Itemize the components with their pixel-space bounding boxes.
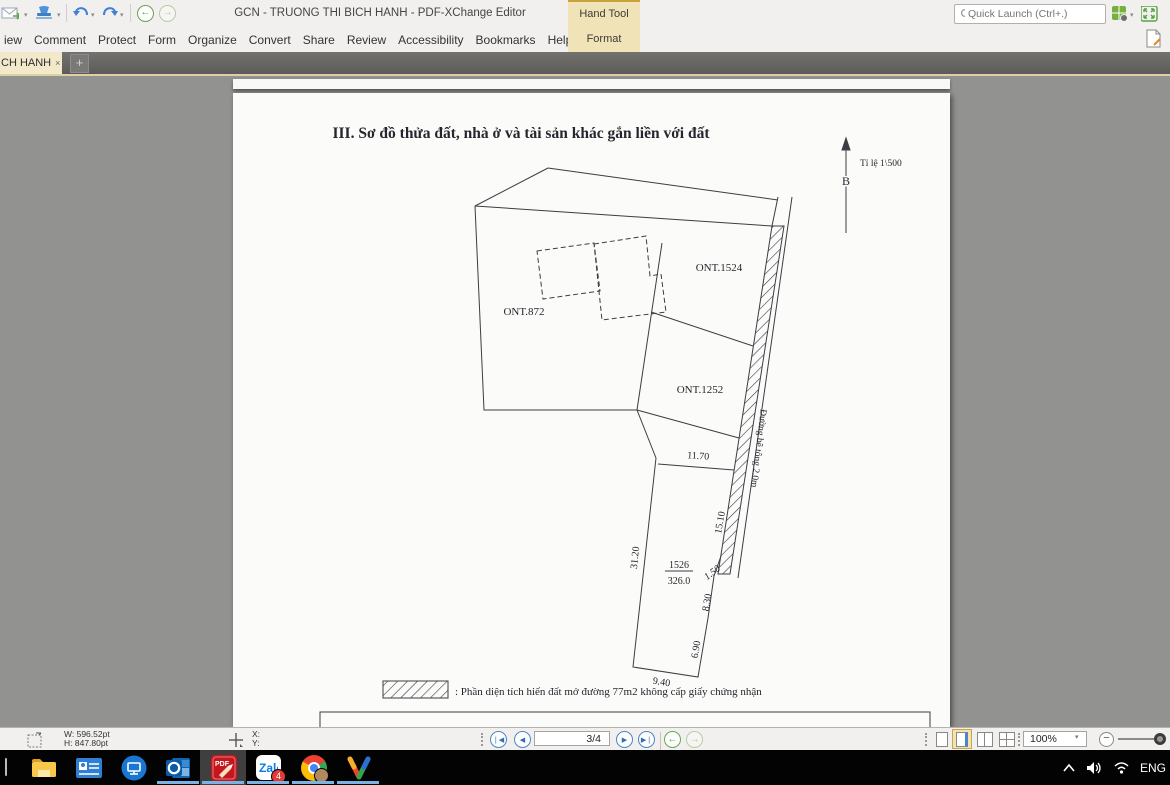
continuous-layout-active[interactable] (952, 729, 972, 749)
taskbar-zalo[interactable]: Zalo 4 (246, 750, 291, 785)
menubar: iew Comment Protect Form Organize Conver… (2, 28, 574, 52)
v-colorful-icon (346, 756, 372, 780)
parcel-left-edge (475, 206, 637, 410)
menu-convert[interactable]: Convert (247, 33, 293, 47)
menu-comment[interactable]: Comment (32, 33, 88, 47)
last-page-button[interactable]: ▶❘ (638, 731, 655, 748)
contact-card-icon (76, 758, 102, 778)
legend-text: : Phần diện tích hiến đất mở đường 77m2 … (455, 686, 762, 698)
dim-right-upper: 8.30 (701, 593, 715, 612)
road-strip-hatched (718, 226, 784, 574)
dim-line-1170 (658, 464, 734, 470)
email-share-icon[interactable] (1, 5, 19, 21)
email-share-caret[interactable]: ▾ (24, 11, 28, 19)
crosshair-icon (228, 732, 244, 748)
plugins-icon[interactable] (1112, 6, 1130, 22)
window-title: GCN - TRUONG THI BICH HANH - PDF-XChange… (230, 7, 530, 19)
zoom-out-button[interactable]: − (1099, 732, 1114, 747)
plugins-caret[interactable]: ▾ (1130, 11, 1134, 19)
menu-review[interactable]: Review (345, 33, 388, 47)
monitor-circle-icon (121, 755, 147, 781)
taskbar-outlook[interactable] (156, 750, 201, 785)
active-tool-panel: Hand Tool Format (568, 0, 640, 52)
parcel-area: 326.0 (668, 576, 691, 587)
quick-launch-input[interactable] (965, 7, 1105, 21)
parcel-band-edge (475, 206, 772, 226)
menu-view[interactable]: iew (2, 33, 24, 47)
redo-caret[interactable]: ▾ (120, 11, 124, 19)
scale-label: Tỉ lệ 1\500 (860, 159, 902, 169)
menu-organize[interactable]: Organize (186, 33, 239, 47)
status-bar: W: 596.52pt H: 847.80pt X: Y: ❘◀ ◀ 3/4 ▶… (0, 727, 1170, 750)
undo-caret[interactable]: ▾ (91, 11, 95, 19)
document-properties-icon[interactable] (1146, 29, 1162, 49)
road-right-edge (738, 197, 792, 578)
system-tray: ENG (1062, 750, 1166, 785)
parcel-number: 1526 (669, 560, 689, 571)
next-view-icon[interactable]: → (159, 5, 176, 22)
land-plot-diagram: III. Sơ đồ thửa đất, nhà ở và tài sản kh… (233, 93, 950, 727)
first-page-button[interactable]: ❘◀ (490, 731, 507, 748)
building-1-dashed (537, 243, 600, 299)
stamp-caret[interactable]: ▾ (57, 11, 61, 19)
menu-bookmarks[interactable]: Bookmarks (474, 33, 538, 47)
fullscreen-icon[interactable] (1141, 6, 1159, 22)
north-arrow-head (842, 138, 850, 150)
road-left-upper (772, 197, 778, 226)
running-indicator (202, 781, 244, 784)
redo-icon[interactable] (101, 5, 119, 21)
hand-tool-label[interactable]: Hand Tool (568, 8, 640, 20)
page-number-box[interactable]: 3/4 (534, 731, 610, 746)
taskbar-v-app[interactable] (336, 750, 381, 785)
parcel-label-ont1524: ONT.1524 (696, 262, 743, 274)
divider-1524-1252 (651, 312, 753, 346)
tab-close-icon[interactable]: × (55, 58, 60, 68)
toolbar-grip[interactable] (925, 733, 931, 746)
menu-protect[interactable]: Protect (96, 33, 138, 47)
parcel-label-ont1252: ONT.1252 (677, 384, 724, 396)
divider-1252-bottom (637, 410, 739, 438)
taskbar-edge-grip[interactable] (5, 758, 7, 776)
menu-accessibility[interactable]: Accessibility (396, 33, 465, 47)
document-tab[interactable]: CH HANH × (0, 52, 62, 74)
tab-bar: CH HANH × + (0, 52, 1170, 76)
pdf-xchange-icon: PDF (211, 755, 237, 781)
parcel-left-top-edge (475, 168, 548, 206)
running-indicator (247, 781, 289, 784)
connector-edge (637, 410, 656, 458)
outlook-icon (166, 756, 191, 780)
next-view-button[interactable]: → (686, 731, 703, 748)
menu-form[interactable]: Form (146, 33, 178, 47)
building-2-dashed (594, 236, 666, 320)
file-explorer-icon (31, 757, 57, 779)
legend-swatch (383, 681, 448, 698)
next-page-button[interactable]: ▶ (616, 731, 633, 748)
language-indicator[interactable]: ENG (1140, 761, 1166, 775)
wifi-icon[interactable] (1113, 761, 1130, 774)
volume-icon[interactable] (1086, 761, 1103, 775)
pdf-xchange-window: ▾ ▾ ▾ ▾ ← → GCN - TRUONG THI BICH HANH -… (0, 0, 1170, 785)
cursor-y-readout: Y: (252, 739, 260, 749)
dim-top: 11.70 (687, 450, 710, 463)
single-page-layout-icon[interactable] (936, 732, 948, 747)
tab-label: CH HANH (1, 57, 51, 69)
taskbar-remote-app[interactable] (111, 750, 156, 785)
dim-left: 31.20 (629, 546, 642, 570)
page-size-icon (27, 732, 44, 748)
section-title: III. Sơ đồ thửa đất, nhà ở và tài sản kh… (332, 125, 710, 142)
taskbar-chrome[interactable] (291, 750, 336, 785)
running-indicator (337, 781, 379, 784)
toolbar-separator (66, 4, 67, 22)
running-indicator (157, 781, 199, 784)
continuous-layout-icon (956, 732, 968, 747)
quick-launch[interactable] (954, 4, 1106, 24)
taskbar-contact-app[interactable] (66, 750, 111, 785)
page-height-readout: H: 847.80pt (64, 739, 108, 749)
parcel-top-edge (548, 168, 778, 200)
taskbar-file-explorer[interactable] (21, 750, 66, 785)
document-viewport[interactable]: III. Sơ đồ thửa đất, nhà ở và tài sản kh… (0, 76, 1170, 727)
format-tab[interactable]: Format (568, 33, 640, 45)
toolbar-grip[interactable] (481, 733, 487, 746)
undo-icon[interactable] (72, 5, 90, 21)
previous-page-button[interactable]: ◀ (514, 731, 531, 748)
running-indicator (292, 781, 334, 784)
multi-page-layout-icon[interactable] (999, 732, 1015, 747)
previous-view-button[interactable]: ← (664, 731, 681, 748)
statusbar-separator (660, 732, 661, 750)
two-page-layout-icon[interactable] (977, 732, 993, 747)
taskbar-pdf-xchange[interactable]: PDF (201, 750, 246, 785)
previous-view-icon[interactable]: ← (137, 5, 154, 22)
menu-share[interactable]: Share (301, 33, 337, 47)
zoom-slider-handle[interactable] (1154, 733, 1166, 745)
pdf-page[interactable]: III. Sơ đồ thửa đất, nhà ở và tài sản kh… (233, 93, 950, 727)
toolbar-separator (130, 4, 131, 22)
new-tab-button[interactable]: + (70, 54, 89, 73)
zoom-caret-icon[interactable]: ▾ (1075, 733, 1079, 741)
next-section-border (320, 712, 930, 727)
north-label: B (842, 174, 850, 188)
parcel-label-ont872: ONT.872 (503, 306, 544, 318)
stamp-icon[interactable] (34, 5, 52, 21)
titlebar: ▾ ▾ ▾ ▾ ← → GCN - TRUONG THI BICH HANH -… (0, 0, 1170, 53)
previous-page-edge (233, 79, 950, 89)
tray-expand-icon[interactable] (1062, 763, 1076, 773)
taskbar: PDF Zalo 4 (0, 750, 1170, 785)
